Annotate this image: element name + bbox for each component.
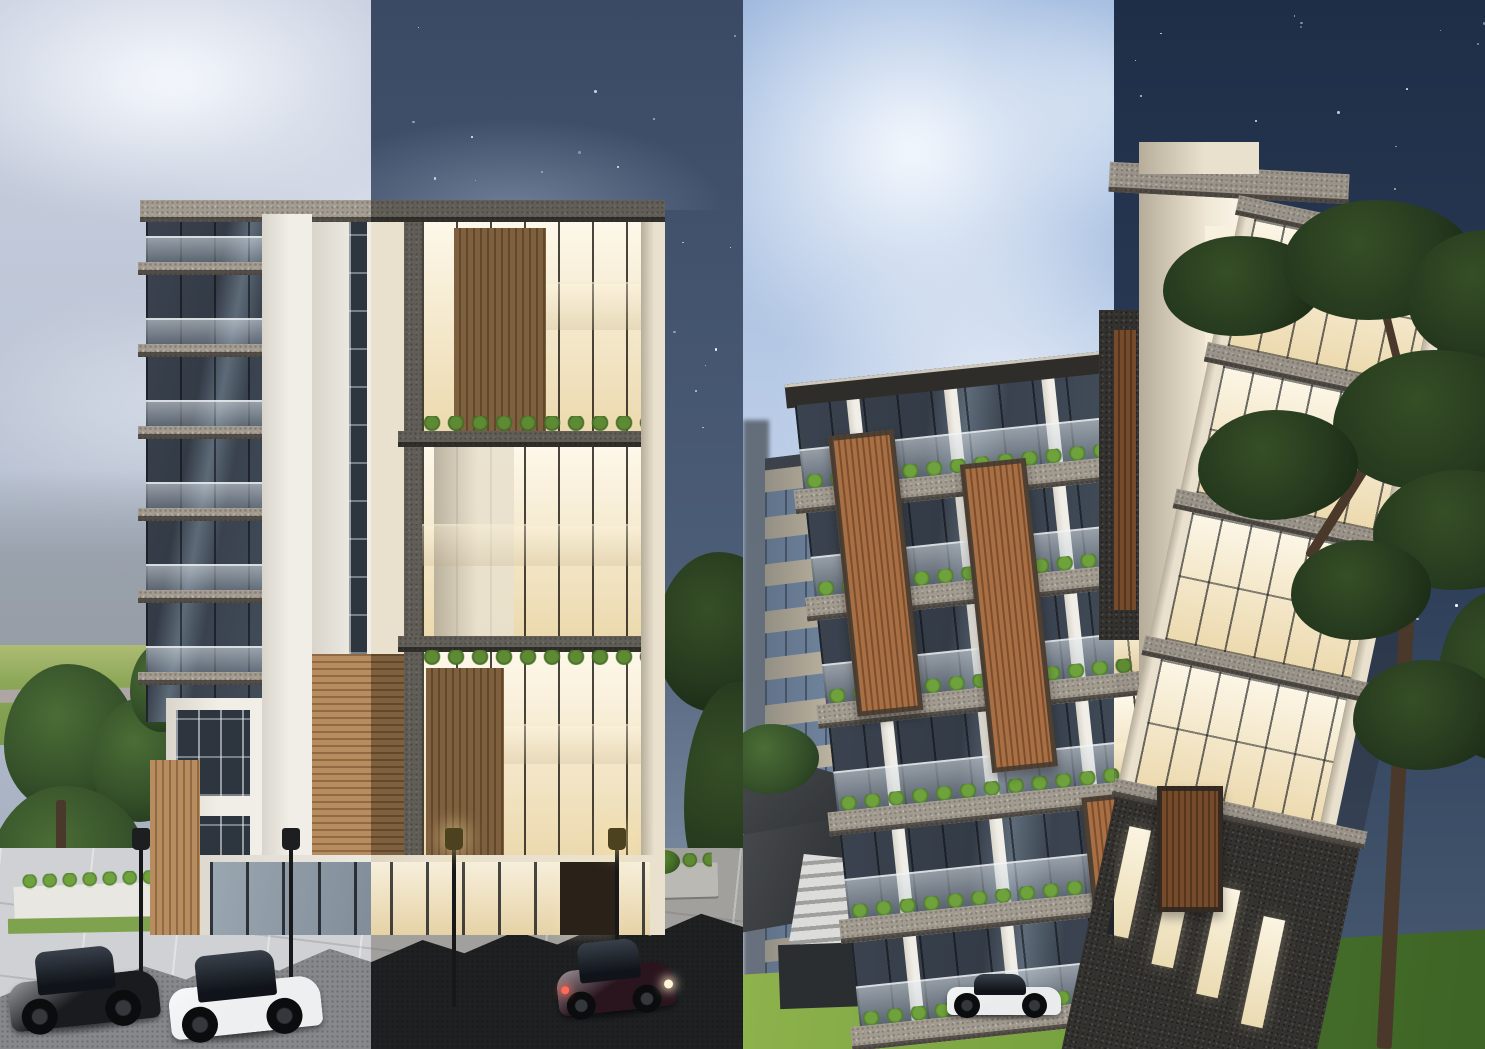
parked-cars	[0, 0, 371, 1049]
tree-canopy	[1198, 410, 1358, 520]
panel-3-day-corner-perspective	[743, 0, 1114, 1049]
tree-canopy	[1353, 660, 1485, 770]
panel-4-night-corner-perspective	[1114, 0, 1485, 1049]
scene-corner-perspective	[1114, 0, 1485, 1049]
black-coupe	[4, 938, 162, 1037]
foreground-tree	[743, 0, 1114, 1049]
car-cabin	[194, 948, 277, 1002]
scene-street-elevation	[0, 0, 371, 1049]
foreground-tree	[1114, 0, 1485, 1049]
scene-corner-perspective	[743, 0, 1114, 1049]
car-cabin	[34, 944, 116, 996]
white-coupe	[164, 942, 324, 1045]
scene-street-elevation	[371, 0, 742, 1049]
architectural-collage	[0, 0, 1485, 1049]
dark-sports-car	[552, 932, 678, 1022]
panel-2-night-street-elevation	[371, 0, 742, 1049]
car-cabin	[576, 937, 641, 984]
parked-cars	[371, 0, 742, 1049]
panel-1-day-street-elevation	[0, 0, 371, 1049]
